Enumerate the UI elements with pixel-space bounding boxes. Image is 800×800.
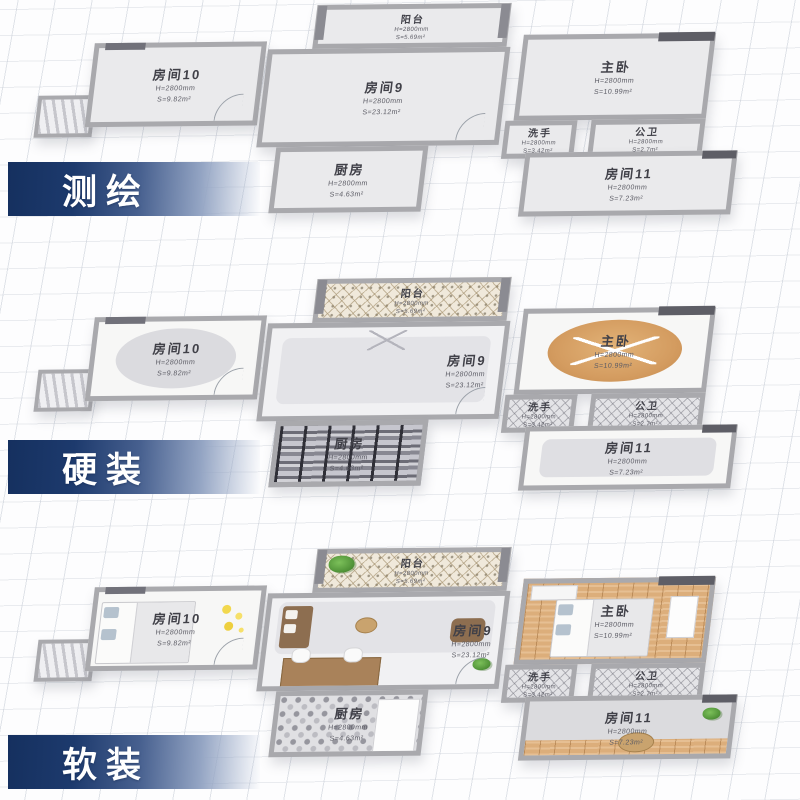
room-room10: 房间10 H=2800mm S=9.82m²: [85, 315, 267, 401]
ceiling-fan-icon: [570, 337, 660, 365]
round-rug: [112, 327, 239, 389]
room-master-bedroom: 主卧 H=2800mm S=10.99m²: [513, 577, 716, 665]
room-room9: 房间9 H=2800mm S=23.12m²: [256, 47, 510, 148]
room-kitchen: 厨房 H=2800mm S=4.63m²: [268, 690, 428, 758]
plant-icon: [702, 708, 721, 720]
room-master-bedroom: 主卧 H=2800mm S=10.99m²: [513, 33, 716, 121]
stage-section-hard-decor: 房间10 H=2800mm S=9.82m² 阳台 H=2800mm S=5.6…: [0, 266, 800, 534]
room-room10: 房间10 H=2800mm S=9.82m²: [85, 585, 267, 671]
room-room9: 房间9 H=2800mm S=23.12m²: [256, 321, 510, 422]
product-showcase-image: 房间10 H=2800mm S=9.82m² 阳台 H=2800mm S=5.6…: [0, 0, 800, 800]
area-rug: [538, 438, 717, 478]
room-kitchen: 厨房 H=2800mm S=4.63m²: [268, 146, 428, 214]
pillow: [103, 607, 119, 618]
blanket: [130, 602, 195, 663]
plant-icon: [328, 556, 356, 573]
kitchen-counter: [372, 699, 421, 752]
lounge-chair: [449, 618, 486, 642]
pillow: [555, 624, 571, 635]
blanket: [587, 599, 654, 656]
room-kitchen: 厨房 H=2800mm S=4.63m²: [268, 420, 428, 488]
ceiling-fan-icon: [367, 330, 407, 350]
stage-badge-soft-decor: 软装: [8, 735, 260, 789]
room-room10: 房间10 H=2800mm S=9.82m²: [85, 41, 267, 127]
desk: [666, 596, 699, 638]
stage-badge-survey: 测绘: [8, 162, 260, 216]
room-master-bedroom: 主卧 H=2800mm S=10.99m²: [513, 307, 716, 395]
stage-badge-hard-decor: 硬装: [8, 440, 260, 494]
room-room9: 房间9 H=2800mm S=23.12m²: [256, 591, 510, 692]
room-balcony: 阳台 H=2800mm S=5.69m²: [312, 547, 512, 593]
stage-section-soft-decor: 房间10 H=2800mm S=9.82m² 阳台 H=2800mm S=5.6…: [0, 532, 800, 800]
room-balcony: 阳台 H=2800mm S=5.69m²: [312, 3, 512, 49]
room-room11: 房间11 H=2800mm S=7.23m²: [518, 424, 738, 490]
pillow: [100, 629, 116, 640]
sofa-cushion: [283, 624, 296, 633]
sofa: [278, 606, 313, 648]
round-wood-rug: [544, 319, 686, 383]
bed: [549, 598, 654, 657]
room-room11: 房间11 H=2800mm S=7.23m²: [518, 694, 738, 760]
pillow: [557, 604, 573, 615]
bed: [95, 601, 197, 664]
plant-icon: [472, 658, 491, 670]
stage-section-survey: 房间10 H=2800mm S=9.82m² 阳台 H=2800mm S=5.6…: [0, 0, 800, 268]
room-room11: 房间11 H=2800mm S=7.23m²: [518, 150, 738, 216]
sofa-cushion: [285, 610, 298, 619]
room-balcony: 阳台 H=2800mm S=5.69m²: [312, 277, 512, 323]
yellow-flower-decor: [222, 605, 232, 614]
